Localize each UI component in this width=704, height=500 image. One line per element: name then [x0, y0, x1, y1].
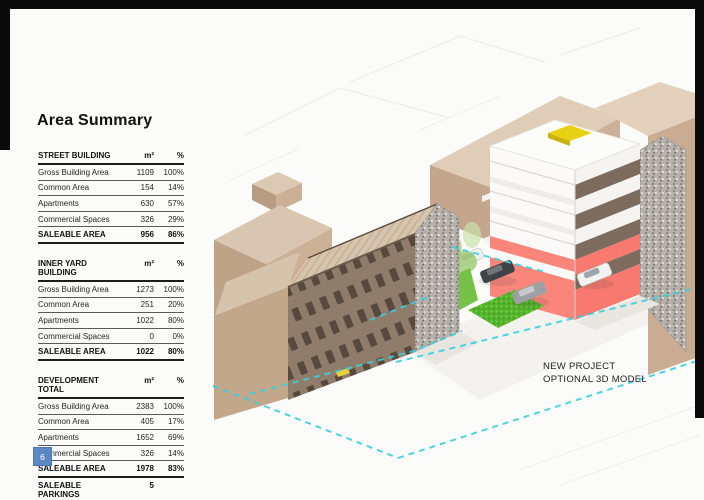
screen-edge-right — [695, 0, 704, 418]
percent-header: % — [154, 151, 184, 160]
row-area-value: 0 — [120, 332, 154, 341]
table-row: SALEABLE AREA 1022 80% — [38, 344, 184, 361]
row-percent-value: 57% — [154, 199, 184, 208]
screen-edge-top — [0, 0, 704, 9]
row-area-value: 5 — [120, 481, 154, 490]
table-row: Commercial Spaces 326 14% — [38, 446, 184, 462]
row-label: Gross Building Area — [38, 285, 120, 294]
table-row: Gross Building Area 2383 100% — [38, 399, 184, 415]
table-row: Common Area 405 17% — [38, 415, 184, 431]
page-number-badge: 6 — [33, 447, 52, 466]
table-title: INNER YARD BUILDING — [38, 259, 120, 277]
row-label: Gross Building Area — [38, 168, 120, 177]
unit-header: m² — [120, 151, 154, 160]
table-body: Gross Building Area 2383 100% Common Are… — [38, 399, 184, 500]
table-inner-yard-building: INNER YARD BUILDING m² % Gross Building … — [38, 257, 184, 361]
row-percent-value: 100% — [154, 402, 184, 411]
table-row: Apartments 630 57% — [38, 196, 184, 212]
screen-edge-left — [0, 0, 10, 150]
table-row: SALEABLE AREA 956 86% — [38, 227, 184, 244]
row-label: Apartments — [38, 316, 120, 325]
row-area-value: 326 — [120, 449, 154, 458]
row-percent-value: 83% — [154, 464, 184, 473]
slide: Area Summary STREET BUILDING m² % Gross … — [0, 0, 704, 500]
area-summary-tables: STREET BUILDING m² % Gross Building Area… — [38, 149, 184, 500]
row-percent-value: 100% — [154, 285, 184, 294]
caption-line-1: NEW PROJECT — [543, 361, 647, 374]
row-area-value: 326 — [120, 215, 154, 224]
unit-header: m² — [120, 259, 154, 268]
table-row: Common Area 251 20% — [38, 298, 184, 314]
table-body: Gross Building Area 1273 100% Common Are… — [38, 282, 184, 361]
row-area-value: 1978 — [120, 464, 154, 473]
table-row: SALEABLE PARKINGS 5 — [38, 478, 184, 500]
table-row: SALEABLE AREA 1978 83% — [38, 461, 184, 478]
table-row: Common Area 154 14% — [38, 181, 184, 197]
row-area-value: 630 — [120, 199, 154, 208]
table-row: Apartments 1022 80% — [38, 313, 184, 329]
table-header: DEVELOPMENT TOTAL m² % — [38, 374, 184, 399]
row-area-value: 1022 — [120, 316, 154, 325]
page-title: Area Summary — [37, 112, 152, 130]
percent-header: % — [154, 259, 184, 268]
table-title: DEVELOPMENT TOTAL — [38, 376, 120, 394]
table-header: STREET BUILDING m² % — [38, 149, 184, 165]
row-percent-value: 100% — [154, 168, 184, 177]
row-area-value: 1022 — [120, 347, 154, 356]
table-development-total: DEVELOPMENT TOTAL m² % Gross Building Ar… — [38, 374, 184, 500]
table-body: Gross Building Area 1109 100% Common Are… — [38, 165, 184, 244]
table-row: Commercial Spaces 326 29% — [38, 212, 184, 228]
row-label: Apartments — [38, 433, 120, 442]
row-area-value: 1109 — [120, 168, 154, 177]
row-label: Commercial Spaces — [38, 215, 120, 224]
row-area-value: 2383 — [120, 402, 154, 411]
row-percent-value: 80% — [154, 316, 184, 325]
row-percent-value: 14% — [154, 183, 184, 192]
row-area-value: 251 — [120, 300, 154, 309]
row-percent-value: 17% — [154, 417, 184, 426]
row-area-value: 1273 — [120, 285, 154, 294]
row-percent-value: 20% — [154, 300, 184, 309]
row-label: Apartments — [38, 199, 120, 208]
row-label: Common Area — [38, 300, 120, 309]
table-row: Commercial Spaces 0 0% — [38, 329, 184, 345]
table-header: INNER YARD BUILDING m² % — [38, 257, 184, 282]
row-area-value: 405 — [120, 417, 154, 426]
row-percent-value: 29% — [154, 215, 184, 224]
row-label: SALEABLE AREA — [38, 230, 120, 239]
row-area-value: 956 — [120, 230, 154, 239]
unit-header: m² — [120, 376, 154, 385]
row-percent-value: 80% — [154, 347, 184, 356]
table-street-building: STREET BUILDING m² % Gross Building Area… — [38, 149, 184, 244]
row-label: SALEABLE PARKINGS — [38, 481, 120, 499]
table-row: Gross Building Area 1109 100% — [38, 165, 184, 181]
table-row: Gross Building Area 1273 100% — [38, 282, 184, 298]
caption-line-2: OPTIONAL 3D MODEL — [543, 374, 647, 387]
row-area-value: 154 — [120, 183, 154, 192]
row-label: Common Area — [38, 183, 120, 192]
row-label: Commercial Spaces — [38, 332, 120, 341]
table-row: Apartments 1652 69% — [38, 430, 184, 446]
row-label: Common Area — [38, 417, 120, 426]
model-caption: NEW PROJECT OPTIONAL 3D MODEL — [543, 361, 647, 386]
row-label: SALEABLE AREA — [38, 347, 120, 356]
row-percent-value: 69% — [154, 433, 184, 442]
row-percent-value: 86% — [154, 230, 184, 239]
row-label: Gross Building Area — [38, 402, 120, 411]
row-percent-value: 0% — [154, 332, 184, 341]
row-percent-value: 14% — [154, 449, 184, 458]
row-area-value: 1652 — [120, 433, 154, 442]
table-title: STREET BUILDING — [38, 151, 120, 160]
percent-header: % — [154, 376, 184, 385]
